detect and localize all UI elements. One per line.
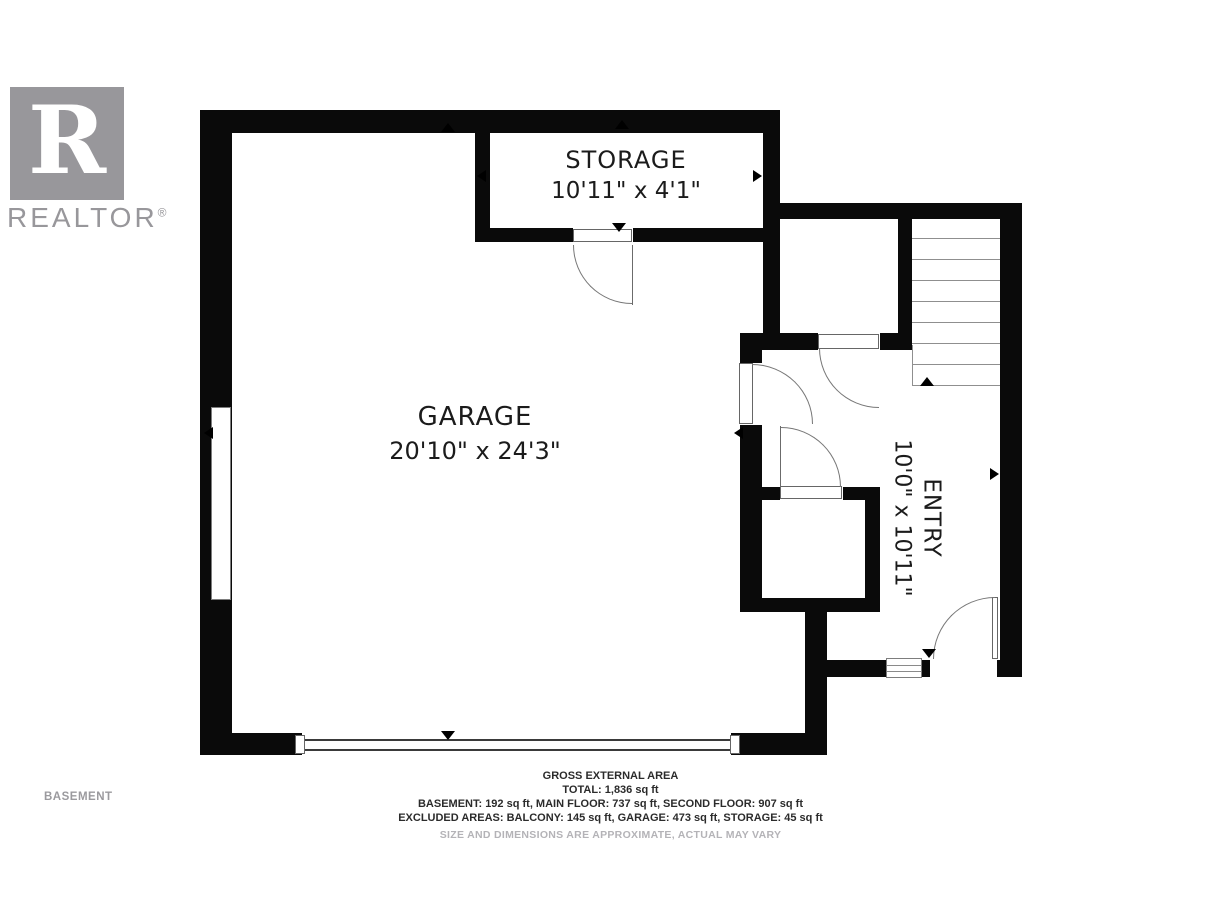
closet-door-leaf: [780, 486, 842, 499]
wall-outer-right: [1000, 203, 1022, 677]
garage-left-window: [211, 407, 231, 600]
garage-door-cap-left: [295, 735, 305, 754]
entry-window: [886, 658, 922, 678]
garage-left-arrow-icon: [204, 427, 213, 439]
area-summary: GROSS EXTERNAL AREA TOTAL: 1,836 sq ft B…: [328, 769, 893, 842]
floorplan-page: { "logo": { "r_letter": "R", "brand": "R…: [0, 0, 1216, 912]
storage-room-dimensions: 10'11" x 4'1": [490, 178, 762, 204]
closet-door-swing-arc: [781, 427, 841, 487]
area-summary-excluded: EXCLUDED AREAS: BALCONY: 145 sq ft, GARA…: [328, 811, 893, 825]
wall-storage-left: [475, 133, 490, 240]
garage-door: [302, 739, 733, 751]
wall-bottom-left-segment: [200, 733, 302, 755]
realtor-logo: R: [10, 87, 124, 200]
garage-room-label: GARAGE 20'10" x 24'3": [320, 402, 630, 465]
landing-door-swing-arc: [819, 348, 879, 408]
front-door-arrow-icon: [922, 649, 936, 658]
storage-room-name: STORAGE: [490, 146, 762, 174]
garage-entry-door-leaf: [739, 363, 753, 424]
entry-left-arrow-icon: [734, 427, 743, 439]
garage-top-arrow-icon: [441, 123, 455, 132]
landing-door-leaf: [818, 334, 879, 349]
wall-garage-lower-right: [805, 612, 827, 755]
wall-storage-right: [763, 110, 780, 350]
stair-tread: [912, 259, 1000, 260]
registered-mark: ®: [158, 206, 170, 220]
storage-room-label: STORAGE 10'11" x 4'1": [490, 146, 762, 204]
wall-landing-right: [898, 203, 912, 345]
realtor-logo-r: R: [28, 94, 106, 188]
entry-window-mullion: [887, 665, 921, 666]
entry-room-dimensions: 10'0" x 10'11": [890, 439, 915, 596]
stair-tread: [912, 280, 1000, 281]
storage-left-arrow-icon: [477, 170, 486, 182]
realtor-wordmark: REALTOR®: [7, 202, 170, 234]
storage-door-swing-arc: [573, 245, 632, 304]
stairs-up-arrow-icon: [920, 377, 934, 386]
area-summary-title: GROSS EXTERNAL AREA: [328, 769, 893, 783]
front-door-opening: [930, 659, 997, 678]
garage-door-cap-right: [730, 735, 740, 754]
storage-door-open-leaf: [632, 245, 633, 305]
garage-entry-door-swing-arc: [752, 364, 813, 424]
area-summary-total: TOTAL: 1,836 sq ft: [328, 783, 893, 797]
floor-name-label: BASEMENT: [44, 791, 113, 803]
entry-right-arrow-icon: [990, 468, 999, 480]
realtor-wordmark-text: REALTOR: [7, 202, 158, 233]
storage-bottom-arrow-icon: [612, 223, 626, 232]
stair-tread: [912, 343, 1000, 344]
entry-window-mullion: [887, 671, 921, 672]
stair-tread: [912, 238, 1000, 239]
wall-outer-top: [200, 110, 780, 133]
garage-room-name: GARAGE: [320, 402, 630, 432]
area-summary-disclaimer: SIZE AND DIMENSIONS ARE APPROXIMATE, ACT…: [328, 828, 893, 842]
area-summary-floors: BASEMENT: 192 sq ft, MAIN FLOOR: 737 sq …: [328, 797, 893, 811]
garage-room-dimensions: 20'10" x 24'3": [320, 437, 630, 465]
wall-closet-right: [865, 487, 880, 612]
front-door-swing-arc: [933, 597, 995, 659]
stair-tread: [912, 364, 1000, 365]
entry-room-name: ENTRY: [919, 439, 945, 596]
stair-side-line: [912, 345, 913, 386]
wall-right-section-top: [763, 203, 1022, 219]
stair-tread: [912, 322, 1000, 323]
garage-bottom-arrow-icon: [441, 731, 455, 740]
stair-tread: [912, 301, 1000, 302]
storage-top-arrow-icon: [615, 120, 629, 129]
wall-closet-bottom: [740, 598, 880, 612]
